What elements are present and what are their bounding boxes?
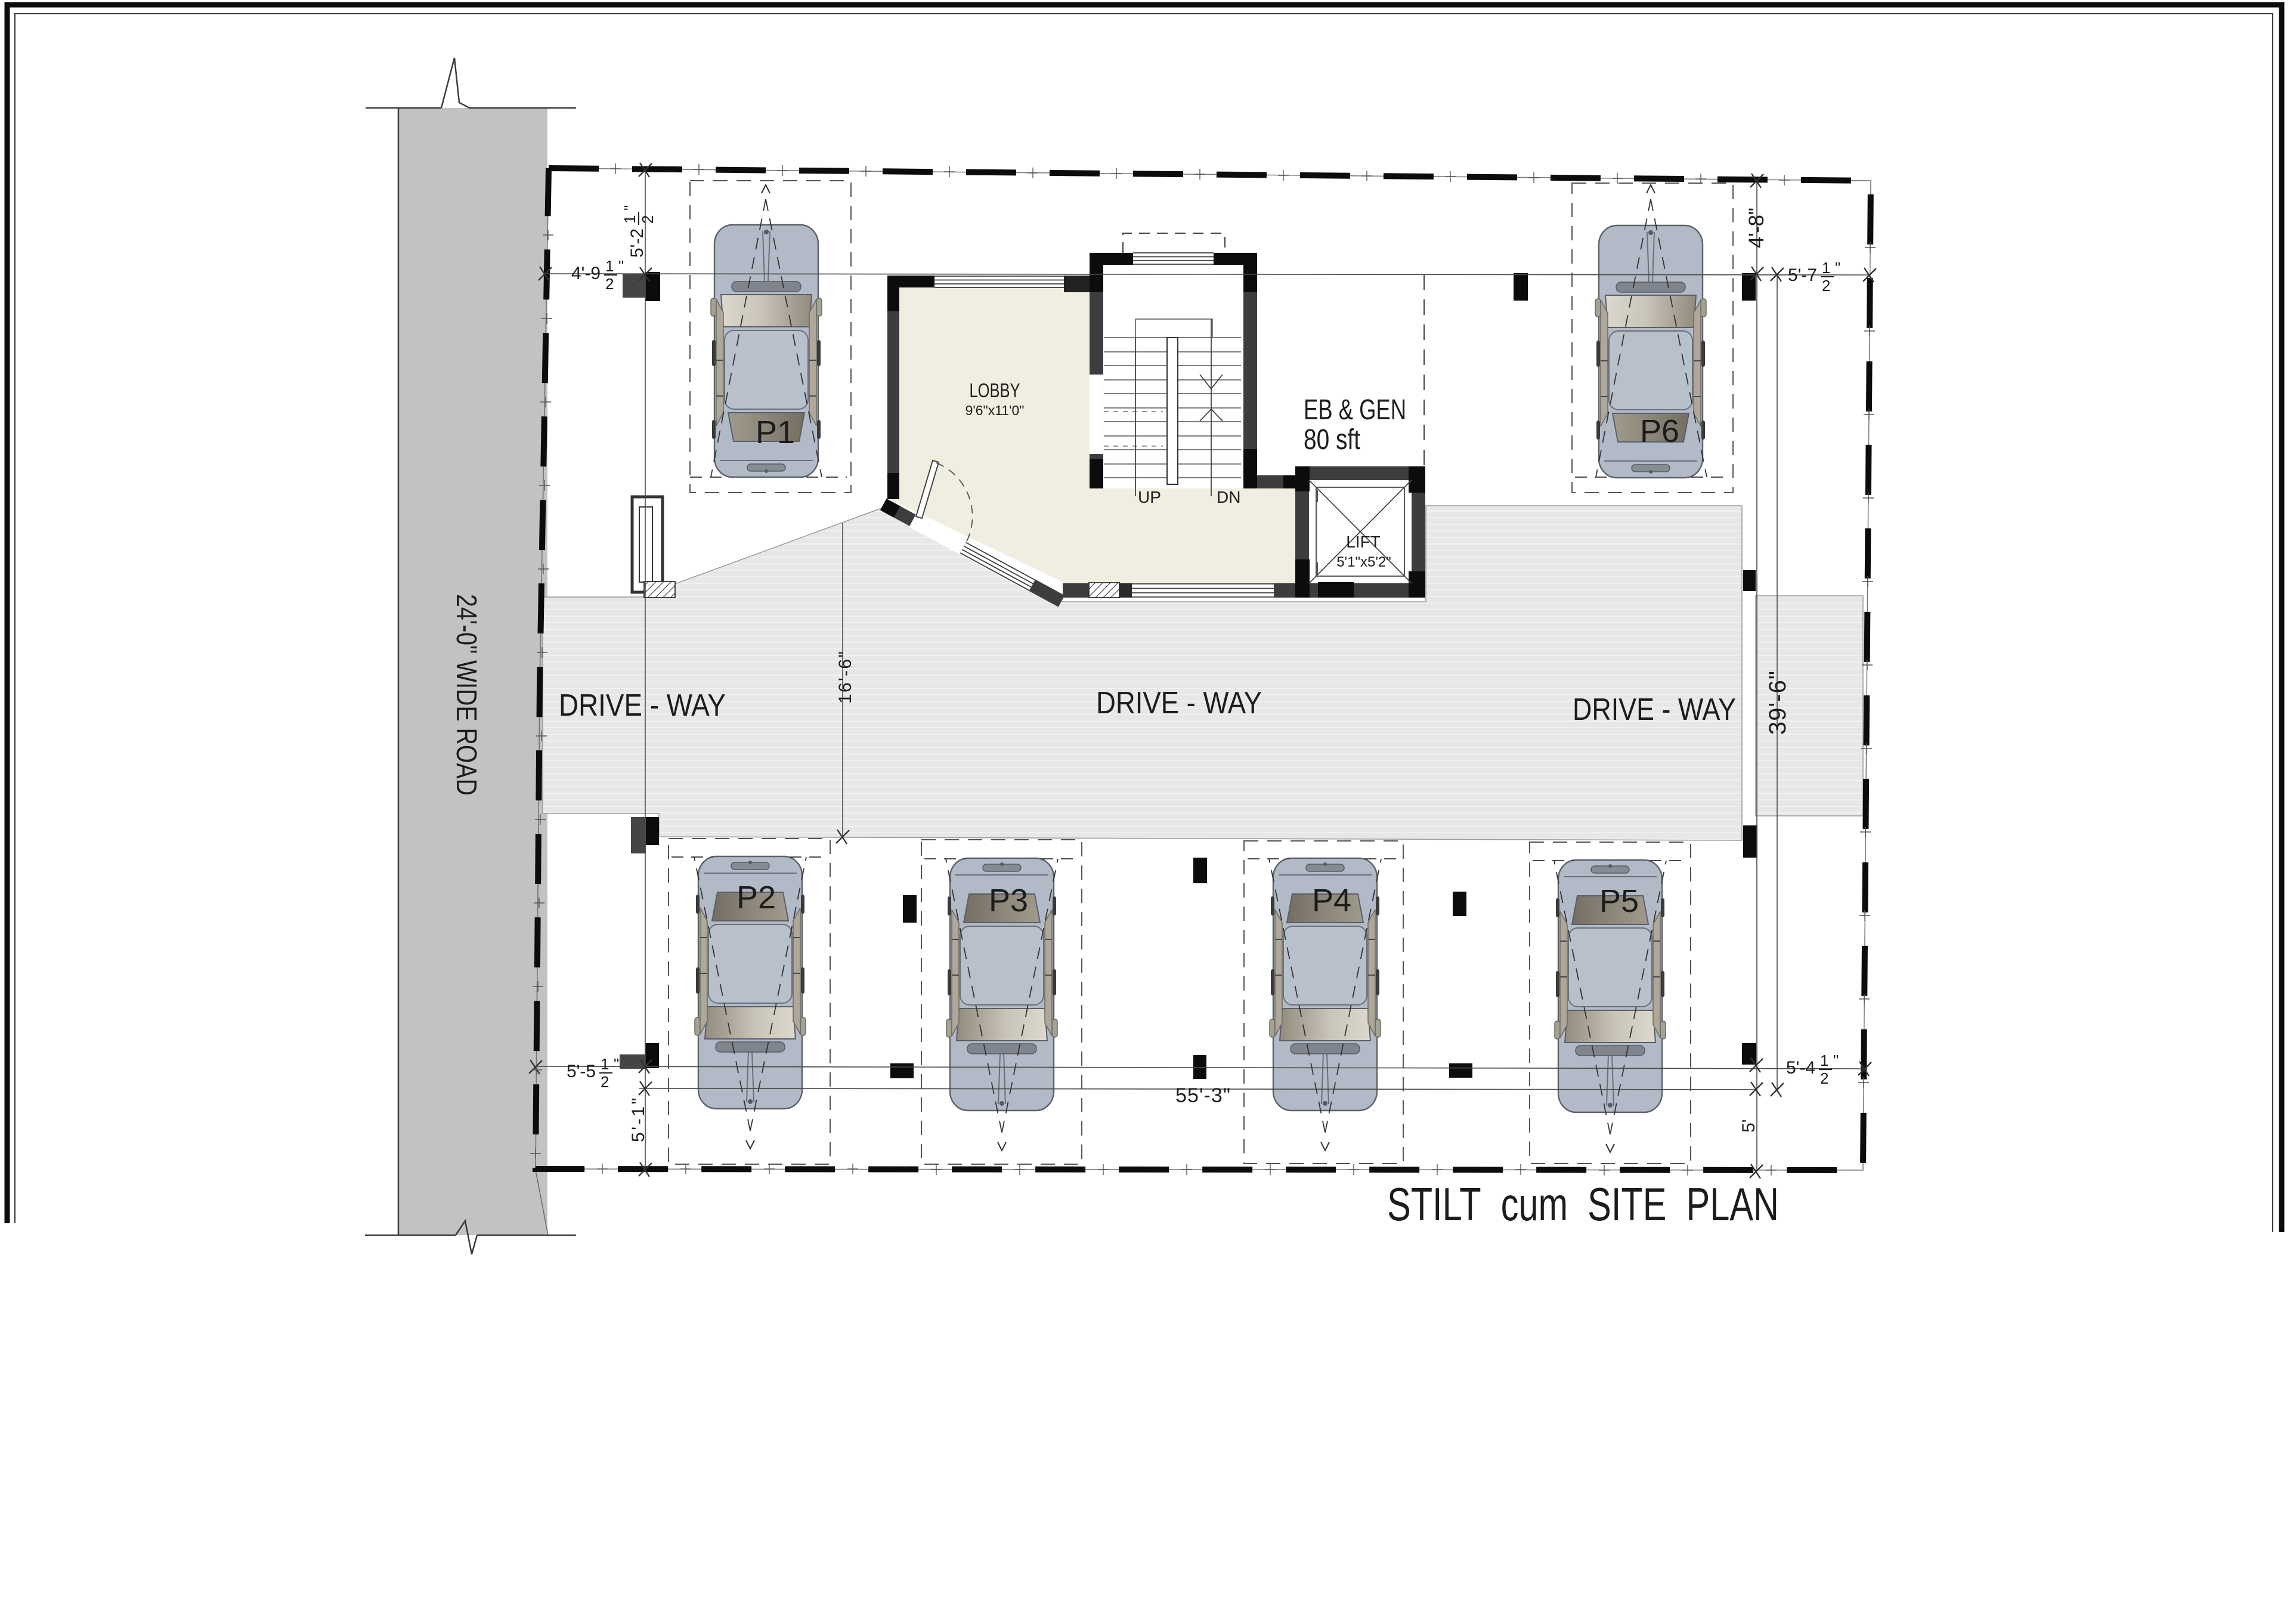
svg-text:24'-0" WIDE ROAD: 24'-0" WIDE ROAD bbox=[450, 594, 482, 796]
svg-text:55'-3": 55'-3" bbox=[1175, 1084, 1230, 1107]
svg-text:39'-6": 39'-6" bbox=[1765, 670, 1791, 735]
svg-text:2: 2 bbox=[605, 275, 614, 293]
svg-text:4'-9: 4'-9 bbox=[571, 264, 601, 283]
svg-text:DRIVE - WAY: DRIVE - WAY bbox=[1096, 686, 1262, 720]
svg-text:EB & GEN: EB & GEN bbox=[1304, 394, 1406, 426]
svg-text:5': 5' bbox=[1739, 1119, 1759, 1133]
svg-text:P1: P1 bbox=[756, 414, 795, 450]
svg-text:2: 2 bbox=[639, 215, 657, 224]
svg-text:P5: P5 bbox=[1599, 883, 1639, 919]
svg-text:9'6"x11'0": 9'6"x11'0" bbox=[965, 403, 1025, 418]
svg-text:STILT cum SITE PLAN: STILT cum SITE PLAN bbox=[1387, 1178, 1779, 1230]
svg-text:2: 2 bbox=[1822, 277, 1830, 295]
svg-text:": " bbox=[618, 257, 624, 275]
svg-text:": " bbox=[1835, 259, 1840, 277]
svg-text:4'-8": 4'-8" bbox=[1745, 208, 1768, 248]
svg-text:5'-2: 5'-2 bbox=[627, 228, 647, 258]
svg-text:1: 1 bbox=[1822, 259, 1830, 277]
svg-text:LOBBY: LOBBY bbox=[970, 379, 1020, 401]
svg-text:1: 1 bbox=[605, 257, 614, 275]
svg-text:LIFT: LIFT bbox=[1346, 533, 1381, 551]
svg-text:1: 1 bbox=[621, 215, 639, 224]
svg-text:5'-1": 5'-1" bbox=[629, 1098, 648, 1142]
svg-text:UP: UP bbox=[1138, 488, 1161, 506]
svg-text:DRIVE - WAY: DRIVE - WAY bbox=[1573, 692, 1736, 727]
svg-text:P2: P2 bbox=[736, 880, 776, 915]
svg-text:5'1"x5'2": 5'1"x5'2" bbox=[1336, 554, 1391, 570]
svg-text:2: 2 bbox=[601, 1073, 609, 1091]
svg-text:P6: P6 bbox=[1640, 413, 1679, 449]
svg-text:P4: P4 bbox=[1312, 883, 1351, 918]
svg-text:": " bbox=[1833, 1051, 1839, 1069]
svg-text:": " bbox=[614, 1055, 619, 1073]
svg-text:": " bbox=[621, 205, 639, 211]
svg-text:P3: P3 bbox=[989, 883, 1028, 918]
svg-text:5'-4: 5'-4 bbox=[1786, 1058, 1815, 1078]
svg-text:DRIVE - WAY: DRIVE - WAY bbox=[559, 688, 726, 723]
svg-text:5'-7: 5'-7 bbox=[1788, 265, 1817, 285]
svg-text:5'-5: 5'-5 bbox=[567, 1062, 596, 1081]
svg-text:2: 2 bbox=[1820, 1069, 1828, 1087]
svg-text:1: 1 bbox=[601, 1055, 609, 1073]
svg-text:1: 1 bbox=[1820, 1051, 1828, 1069]
svg-text:DN: DN bbox=[1217, 488, 1240, 506]
svg-text:80 sft: 80 sft bbox=[1304, 424, 1360, 456]
